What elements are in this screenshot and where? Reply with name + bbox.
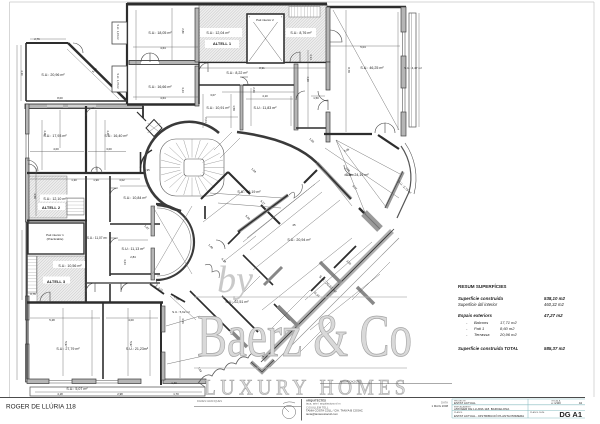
svg-text:S.U.: 8,22 m²: S.U.: 8,22 m²	[226, 71, 248, 75]
svg-text:3,00: 3,00	[106, 147, 112, 151]
svg-text:ALTELL 3: ALTELL 3	[47, 279, 66, 284]
svg-text:2,84: 2,84	[130, 255, 136, 259]
svg-text:1 MAIG 2008: 1 MAIG 2008	[432, 404, 449, 408]
svg-text:4,18: 4,18	[57, 392, 63, 396]
svg-text:S.U.: 10,91 m²: S.U.: 10,91 m²	[206, 106, 230, 110]
svg-text:8,78: 8,78	[347, 67, 351, 73]
svg-text:1,89: 1,89	[173, 295, 180, 302]
svg-text:1,50: 1,50	[313, 96, 319, 100]
svg-text:S.U.: 21,23m²: S.U.: 21,23m²	[126, 347, 149, 351]
svg-text:S.U.: 5,62 m²: S.U.: 5,62 m²	[172, 310, 190, 314]
svg-text:ALTELL 2: ALTELL 2	[42, 205, 61, 210]
svg-text:4,00: 4,00	[53, 147, 59, 151]
svg-text:5,97: 5,97	[64, 341, 68, 347]
svg-text:S.U.: 27,79 m²: S.U.: 27,79 m²	[56, 347, 80, 351]
svg-text:-: -	[466, 320, 468, 325]
svg-text:8,00: 8,00	[57, 96, 63, 100]
svg-text:1,58: 1,58	[232, 105, 236, 111]
svg-text:S.U.: 11,13 m²: S.U.: 11,13 m²	[122, 247, 146, 251]
svg-text:PLANOL NUM.: PLANOL NUM.	[530, 411, 545, 414]
svg-text:3,07: 3,07	[210, 93, 216, 97]
svg-text:S.U.: 56,19 m²: S.U.: 56,19 m²	[237, 190, 261, 194]
svg-text:c/ROGER DE LLURIA 118. BARCELO: c/ROGER DE LLURIA 118. BARCELONA	[454, 407, 509, 411]
svg-text:4,10: 4,10	[262, 94, 268, 98]
svg-text:47,27 m2: 47,27 m2	[543, 313, 563, 318]
svg-text:tania@taniacostacoll.com: tania@taniacostacoll.com	[306, 412, 339, 416]
svg-text:1,40: 1,40	[171, 381, 177, 385]
svg-text:A3: A3	[579, 401, 583, 405]
svg-text:S.U.: 12,04 m²: S.U.: 12,04 m²	[206, 31, 230, 35]
svg-text:S.U.: 11,07 m²: S.U.: 11,07 m²	[87, 236, 107, 240]
svg-text:Baerz & Co: Baerz & Co	[197, 303, 412, 369]
svg-text:20,96 m2: 20,96 m2	[499, 332, 517, 337]
svg-text:LUXURY HOMES: LUXURY HOMES	[204, 375, 410, 400]
svg-text:S.U.: 46,25 m²: S.U.: 46,25 m²	[360, 66, 384, 70]
svg-text:(Practicable): (Practicable)	[47, 237, 64, 241]
svg-text:S.U.: 20,94 m²: S.U.: 20,94 m²	[287, 238, 311, 242]
svg-text:1,05: 1,05	[308, 137, 315, 144]
svg-text:DG A1: DG A1	[559, 410, 582, 419]
svg-text:Espais exteriors: Espais exteriors	[458, 313, 492, 318]
svg-text:S.U.: 8,76 m²: S.U.: 8,76 m²	[290, 31, 312, 35]
svg-text:4,30: 4,30	[20, 70, 24, 76]
svg-text:1,30: 1,30	[71, 178, 77, 182]
svg-text:538,10 m2: 538,10 m2	[544, 296, 566, 301]
svg-text:3,20: 3,20	[344, 166, 351, 173]
svg-text:17,71 m2: 17,71 m2	[500, 320, 517, 325]
svg-text:DADES GRAFIQUES: DADES GRAFIQUES	[197, 399, 222, 403]
svg-text:S.U.: 11,83 m²: S.U.: 11,83 m²	[254, 106, 278, 110]
svg-text:0,76: 0,76	[30, 292, 36, 296]
svg-text:Pati interior 2: Pati interior 2	[256, 18, 274, 22]
svg-text:S.U.: 10,56 m²: S.U.: 10,56 m²	[58, 264, 82, 268]
svg-text:9,17: 9,17	[259, 199, 266, 206]
svg-text:5,28: 5,28	[49, 318, 55, 322]
svg-text:ESTAT ACTUAL: ESTAT ACTUAL	[454, 401, 476, 405]
svg-text:S.U.: 1,70 m²: S.U.: 1,70 m²	[116, 73, 120, 88]
svg-text:ROGER DE LLÚRIA 118: ROGER DE LLÚRIA 118	[6, 402, 76, 411]
svg-text:4,64: 4,64	[160, 96, 166, 100]
svg-text:1,40: 1,40	[207, 243, 214, 250]
svg-text:RESUM SUPERFÍCIES: RESUM SUPERFÍCIES	[458, 282, 507, 289]
svg-text:9,17: 9,17	[351, 184, 358, 191]
svg-text:S.U.: 16,66 m²: S.U.: 16,66 m²	[148, 85, 172, 89]
svg-text:8,60 m2: 8,60 m2	[500, 326, 515, 331]
svg-text:Superficie útil interior: Superficie útil interior	[458, 302, 498, 307]
svg-text:5,97: 5,97	[129, 341, 133, 347]
svg-text:2,98: 2,98	[117, 392, 123, 396]
svg-text:S.U.: 1,15 m²: S.U.: 1,15 m²	[116, 24, 120, 39]
svg-text:MODIFICACIONS: MODIFICACIONS	[340, 380, 361, 384]
svg-text:1,99: 1,99	[93, 178, 99, 182]
svg-text:Terrassa: Terrassa	[474, 332, 490, 337]
svg-text:S.U.: 24,19 m²: S.U.: 24,19 m²	[345, 173, 369, 177]
svg-text:Pati 1: Pati 1	[474, 326, 484, 331]
svg-text:Balcons: Balcons	[474, 320, 488, 325]
svg-text:S.U.: 20,96 m²: S.U.: 20,96 m²	[41, 73, 65, 77]
svg-text:460,32 m2: 460,32 m2	[544, 302, 564, 307]
svg-text:S.U.: 12,10 m²: S.U.: 12,10 m²	[43, 197, 67, 201]
svg-text:2,80: 2,80	[181, 28, 185, 34]
svg-text:3,58: 3,58	[33, 193, 37, 199]
svg-text:5,04: 5,04	[360, 45, 366, 49]
svg-text:Superficie construida: Superficie construida	[458, 296, 503, 301]
svg-text:5,86: 5,86	[244, 214, 251, 221]
svg-text:ESTAT ACTUAL - DISTRIBUCIÓ PLA: ESTAT ACTUAL - DISTRIBUCIÓ PLANTA PRIMER…	[454, 413, 524, 418]
svg-text:-: -	[466, 332, 468, 337]
svg-text:5,46: 5,46	[343, 147, 350, 153]
svg-text:by: by	[217, 259, 253, 301]
svg-text:1,98: 1,98	[250, 167, 257, 174]
svg-text:2,68: 2,68	[252, 87, 256, 93]
svg-text:S.U.: 18,05 m²: S.U.: 18,05 m²	[148, 31, 172, 35]
svg-text:e: 1/100: e: 1/100	[551, 401, 561, 405]
svg-text:4,00: 4,00	[128, 318, 134, 322]
svg-text:1,87: 1,87	[143, 224, 150, 231]
svg-text:2,04: 2,04	[204, 117, 208, 123]
svg-text:S.U.: 10,84 m²: S.U.: 10,84 m²	[123, 196, 147, 200]
svg-text:3,43: 3,43	[181, 87, 185, 93]
svg-text:3,66: 3,66	[181, 318, 185, 324]
svg-text:ALTELL 1: ALTELL 1	[213, 41, 232, 46]
svg-text:3,14: 3,14	[309, 54, 313, 60]
svg-text:S.U.: 5,07 m²: S.U.: 5,07 m²	[66, 387, 88, 391]
svg-text:3,63: 3,63	[123, 259, 127, 265]
svg-text:-: -	[466, 326, 468, 331]
svg-text:4,64: 4,64	[160, 46, 166, 50]
svg-text:25: 25	[292, 223, 296, 227]
svg-text:4,40: 4,40	[106, 130, 110, 136]
svg-text:3,22: 3,22	[157, 286, 164, 293]
svg-text:585,37 m2: 585,37 m2	[544, 346, 566, 351]
svg-text:3,02: 3,02	[119, 178, 125, 182]
svg-text:Superficie construida TOTAL: Superficie construida TOTAL	[458, 346, 519, 351]
svg-text:4,40: 4,40	[43, 130, 47, 136]
svg-text:1,95: 1,95	[144, 168, 150, 172]
svg-text:1,70: 1,70	[173, 392, 179, 396]
